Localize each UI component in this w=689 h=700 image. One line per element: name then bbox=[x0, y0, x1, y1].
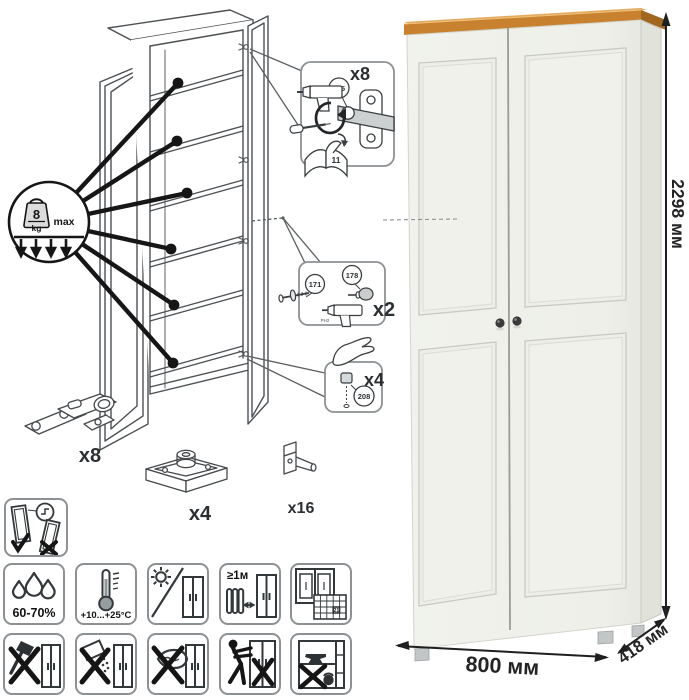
wall-anchor-pictogram bbox=[4, 498, 68, 557]
load-value: 8 bbox=[33, 207, 40, 222]
side-panel bbox=[641, 20, 661, 623]
screw-part-number: 171 bbox=[309, 280, 322, 289]
knob-part-number: 178 bbox=[346, 271, 359, 280]
calendar-icon: 21 bbox=[314, 595, 346, 619]
no-sunlight-pictogram bbox=[147, 563, 209, 625]
anvil-icon bbox=[305, 654, 326, 664]
thermometer-icon bbox=[99, 570, 119, 610]
height-dimension-label: 2298 мм bbox=[668, 179, 688, 249]
mini-wardrobe-icon bbox=[183, 577, 203, 617]
load-unit: kg bbox=[32, 223, 42, 233]
wardrobe-line-drawing bbox=[100, 10, 268, 450]
no-abrasives-pictogram bbox=[75, 633, 137, 695]
kettlebell-icon bbox=[323, 673, 333, 685]
min-distance-value: ≥1м bbox=[227, 570, 248, 582]
height-dimension bbox=[662, 12, 671, 620]
ventilation-pictogram: 21 bbox=[290, 563, 352, 625]
knob-step-callout: 171 178 bbox=[279, 262, 396, 327]
bit-size-label: PH2 bbox=[321, 318, 330, 323]
mini-wardrobe-icon bbox=[186, 645, 204, 687]
x-mark-icon bbox=[154, 648, 182, 682]
knob-step-qty: x2 bbox=[373, 299, 395, 321]
water-drops-icon bbox=[13, 573, 55, 598]
shelf-pin-hardware-qty: x16 bbox=[288, 500, 315, 517]
cap-part-number: 208 bbox=[358, 392, 371, 401]
hinge-hardware-qty: x8 bbox=[79, 445, 101, 467]
foot-hardware-icon bbox=[146, 450, 227, 492]
calendar-day-value: 21 bbox=[334, 608, 340, 614]
no-scrubbing-pictogram bbox=[147, 633, 209, 695]
cap-step-callout: x4 208 bbox=[325, 338, 384, 412]
no-impact-pictogram bbox=[3, 633, 65, 695]
shelf-pin-hardware-icon bbox=[284, 442, 316, 474]
temperature-pictogram: +10...+25°С bbox=[75, 563, 137, 625]
humidity-pictogram: 60-70% bbox=[3, 563, 65, 625]
load-qualifier: max bbox=[53, 216, 74, 228]
heat-distance-pictogram: ≥1м bbox=[219, 563, 281, 625]
no-overload-pictogram bbox=[290, 633, 352, 695]
person-icon bbox=[229, 640, 251, 683]
x-mark-icon bbox=[82, 650, 108, 682]
shelf-load-limit-badge: 8 kg max bbox=[9, 182, 89, 262]
manual-page-number: 11 bbox=[332, 155, 341, 165]
technical-drawing: 8 kg max x8 115 bbox=[0, 0, 460, 540]
humidity-value: 60-70% bbox=[12, 606, 55, 620]
double-arrow-icon bbox=[244, 603, 255, 608]
radiator-icon bbox=[227, 589, 243, 613]
mini-wardrobe-icon bbox=[257, 575, 276, 617]
mini-wardrobe-icon bbox=[42, 645, 60, 687]
width-dimension-label: 800 мм bbox=[465, 652, 540, 680]
assembly-instruction-sheet: 2298 мм 800 мм 418 мм bbox=[0, 0, 689, 700]
temperature-value: +10...+25°С bbox=[81, 610, 132, 621]
foot-hardware-qty: x4 bbox=[189, 503, 212, 525]
no-pushing-pictogram bbox=[219, 633, 281, 695]
sun-icon bbox=[151, 567, 171, 587]
hinge-step-callout: x8 115 bbox=[290, 62, 394, 166]
mini-wardrobe-icon bbox=[114, 645, 132, 687]
x-mark-icon bbox=[301, 666, 325, 687]
hinge-step-qty: x8 bbox=[350, 64, 370, 84]
